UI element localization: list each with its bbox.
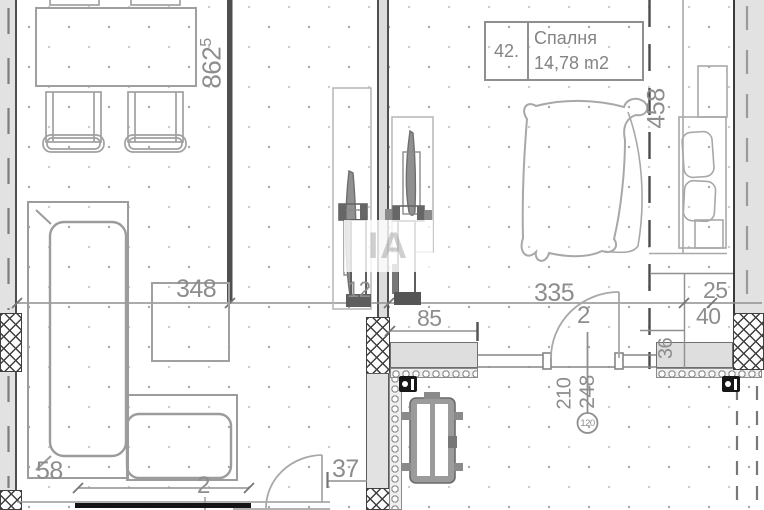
door-height-248: 248 bbox=[576, 368, 600, 416]
shaft-dashed-lines bbox=[737, 386, 757, 510]
duvet-outline bbox=[522, 99, 648, 261]
dimension-ticks bbox=[12, 298, 717, 493]
hall-radiator-left bbox=[333, 88, 371, 309]
socket-icon bbox=[399, 376, 417, 392]
radiator bbox=[402, 392, 463, 483]
floor-plan: 42. Спалня 14,78 m2 8625 348 12 335 85 2… bbox=[0, 0, 764, 510]
room-label-box: 42. Спалня 14,78 m2 bbox=[484, 21, 644, 81]
watermark: IA bbox=[344, 220, 433, 272]
pillow bbox=[683, 180, 716, 222]
room-area: 14,78 m2 bbox=[534, 53, 642, 74]
dining-table bbox=[36, 8, 196, 86]
dim-total-height: 8625 bbox=[190, 26, 234, 100]
dim-12: 12 bbox=[347, 279, 370, 301]
living-door-label: 2 bbox=[197, 474, 210, 498]
dim-25: 25 bbox=[703, 279, 728, 302]
room-number: 42. bbox=[486, 23, 529, 79]
dim-58: 58 bbox=[36, 459, 63, 484]
corner-sofa bbox=[28, 202, 237, 480]
socket-icon bbox=[722, 376, 740, 392]
door-height-210: 210 bbox=[554, 370, 576, 416]
bedroom-door-label: 2 bbox=[577, 304, 590, 328]
bedroom-bottom-wall bbox=[478, 353, 656, 369]
pillow bbox=[682, 131, 715, 178]
living-door bbox=[266, 455, 322, 508]
dim-living-width: 348 bbox=[176, 277, 216, 302]
dim-37: 37 bbox=[332, 457, 359, 482]
dim-40: 40 bbox=[696, 305, 721, 328]
room-name: Спалня bbox=[534, 28, 642, 49]
door-width-circled: 120 bbox=[577, 417, 598, 429]
dim-36: 36 bbox=[655, 330, 679, 366]
dim-85: 85 bbox=[417, 307, 442, 330]
dim-bedroom-depth: 458 bbox=[644, 80, 670, 136]
dining-chairs bbox=[43, 0, 186, 152]
hall-radiator-right bbox=[385, 117, 433, 305]
dim-bedroom-width: 335 bbox=[534, 281, 574, 306]
